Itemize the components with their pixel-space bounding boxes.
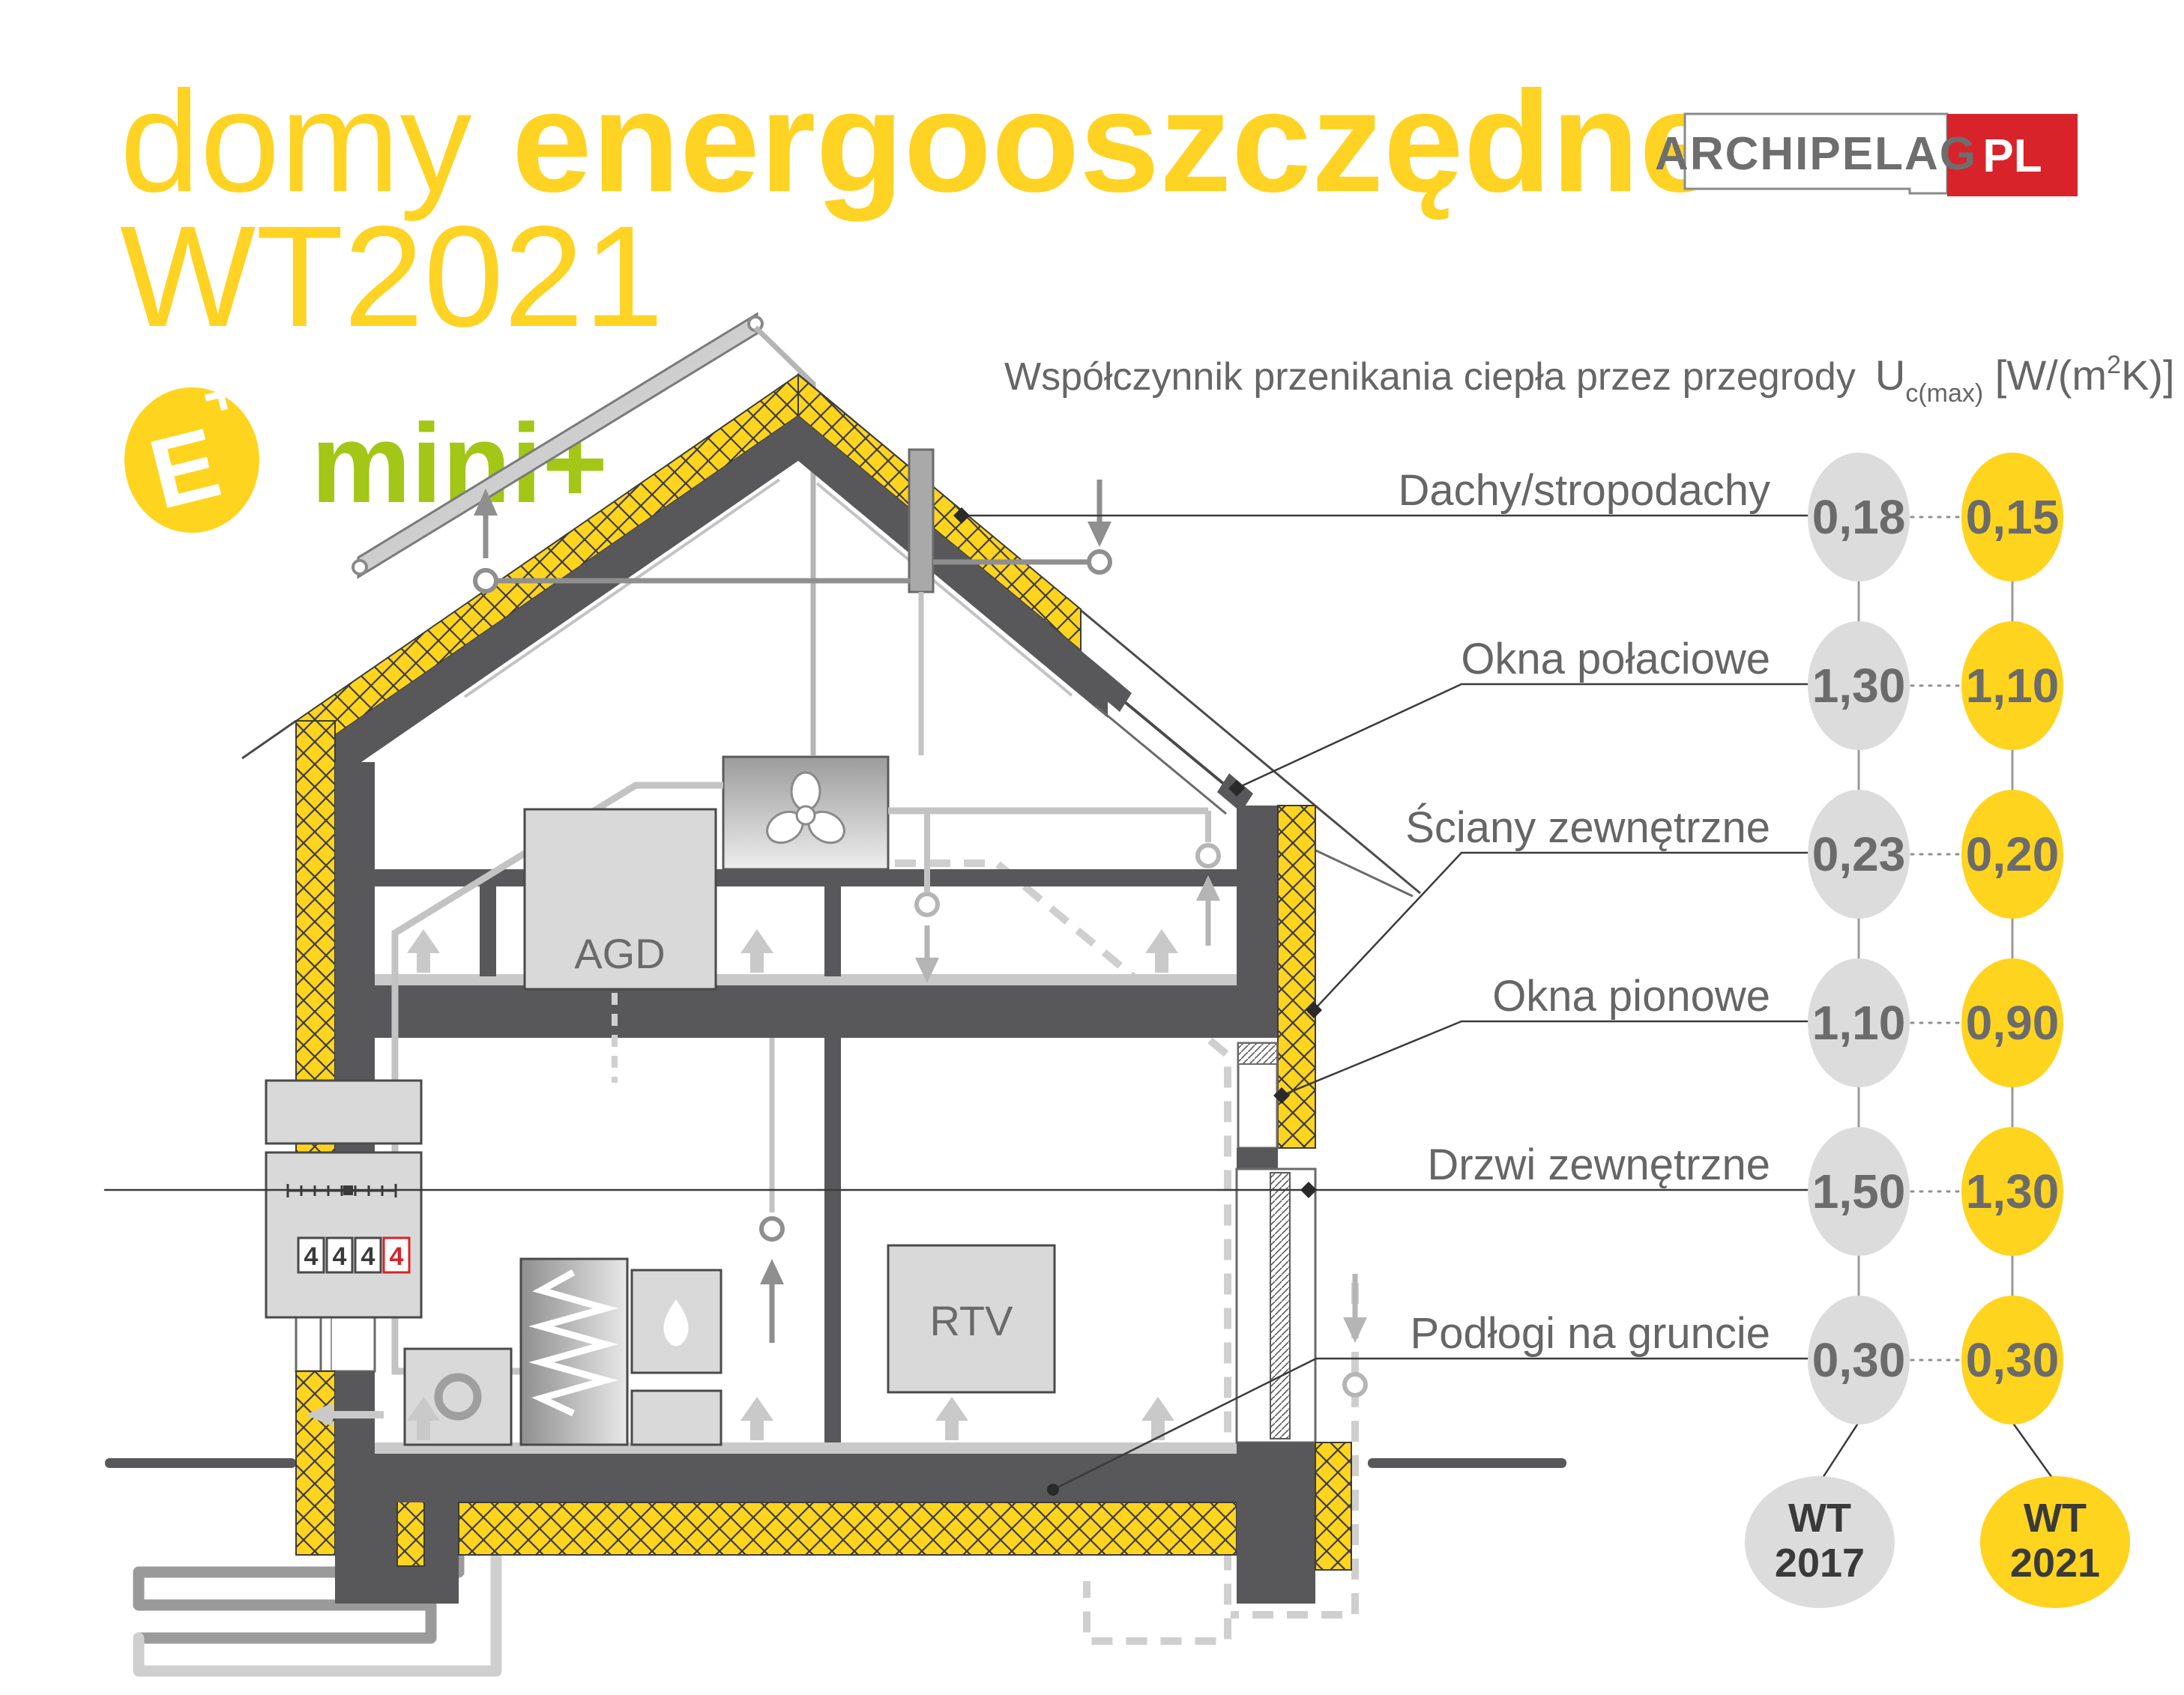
interior-wall-upper-left bbox=[480, 886, 496, 976]
roof-insulation-right bbox=[798, 375, 1081, 650]
value-wt2021: 0,15 bbox=[1966, 490, 2060, 544]
value-wt2017: 1,50 bbox=[1812, 1164, 1906, 1218]
row-label: Podłogi na gruncie bbox=[1411, 1309, 1770, 1358]
roof-eave-left bbox=[242, 721, 296, 758]
row-label: Dachy/stropodachy bbox=[1399, 466, 1770, 515]
rtv-label: RTV bbox=[930, 1297, 1014, 1344]
header-unit-close: K)] bbox=[2121, 351, 2175, 399]
wt2021-line1: WT bbox=[2024, 1496, 2087, 1541]
column-header-wt2021: WT 2021 bbox=[1980, 1476, 2130, 1608]
value-wt2017: 1,30 bbox=[1812, 659, 1906, 713]
title-bold: energooszczędne bbox=[512, 61, 1719, 222]
utility-box bbox=[266, 1081, 421, 1143]
table-header: Współczynnik przenikania ciepła przez pr… bbox=[1004, 351, 2175, 408]
meter-digit: 4 bbox=[304, 1242, 319, 1271]
column-tail-wt2021 bbox=[2012, 1422, 2052, 1478]
eplus-badge: E + bbox=[124, 355, 267, 533]
extract-vent-icon-right bbox=[1196, 845, 1220, 946]
header-unit-open: [W/(m bbox=[1983, 351, 2107, 399]
storage-box bbox=[632, 1391, 721, 1445]
interior-wall-upper-right bbox=[824, 886, 841, 976]
value-wt2021: 0,20 bbox=[1966, 827, 2060, 881]
agd-label: AGD bbox=[574, 930, 665, 977]
supply-vent-icon-mid bbox=[915, 894, 939, 983]
table-row: Okna połaciowe 1,30 1,10 bbox=[1228, 621, 2063, 797]
column-tail-wt2017 bbox=[1823, 1422, 1859, 1478]
value-wt2021: 0,30 bbox=[1966, 1333, 2060, 1387]
header-unit-sup: 2 bbox=[2107, 351, 2121, 379]
logo-tld: PL bbox=[1982, 130, 2042, 182]
value-wt2021: 1,30 bbox=[1966, 1164, 2060, 1218]
foundation-insulation-right bbox=[1315, 1442, 1351, 1570]
ground-line-left bbox=[105, 1458, 296, 1468]
wt2017-line1: WT bbox=[1788, 1496, 1851, 1541]
wt2017-line2: 2017 bbox=[1775, 1541, 1865, 1586]
window-right-blind bbox=[1238, 1043, 1277, 1064]
table-row: Dachy/stropodachy 0,18 0,15 bbox=[953, 453, 2063, 581]
value-wt2017: 0,30 bbox=[1812, 1333, 1906, 1387]
door-head bbox=[1237, 1148, 1278, 1169]
value-wt2021: 1,10 bbox=[1966, 659, 2060, 713]
floor-slab-ground bbox=[375, 1454, 1237, 1502]
archipelag-logo: ARCHIPELAG PL bbox=[1655, 114, 2078, 196]
value-wt2017: 0,23 bbox=[1812, 827, 1906, 881]
value-wt2021: 0,90 bbox=[1966, 996, 2060, 1050]
column-header-wt2017: WT 2017 bbox=[1745, 1476, 1895, 1608]
wall-structure-right-top bbox=[1237, 806, 1278, 985]
floor-insulation-ground bbox=[459, 1502, 1237, 1555]
plinth-insulation-left bbox=[296, 1371, 335, 1555]
page-title-line2: WT2021 bbox=[120, 196, 664, 357]
roof-structure-right bbox=[798, 416, 1108, 718]
door-vent-icon bbox=[1343, 1274, 1367, 1395]
attic-collar-beam bbox=[375, 869, 1237, 886]
header-u: U bbox=[1875, 351, 1905, 399]
floor-screed-upper bbox=[375, 974, 1237, 985]
exterior-door-leaf bbox=[1270, 1173, 1290, 1439]
meter-digit: 4 bbox=[333, 1242, 347, 1271]
meter-digit: 4 bbox=[361, 1242, 375, 1271]
floor-heat-arrows-upper bbox=[407, 929, 1178, 973]
roof-window-glass-inner bbox=[1096, 706, 1226, 814]
ground-line-right bbox=[1368, 1458, 1566, 1468]
infographic-canvas: domy energooszczędne WT2021 ARCHIPELAG P… bbox=[0, 0, 2184, 1695]
header-u-sub: c(max) bbox=[1905, 379, 1983, 408]
row-label: Okna połaciowe bbox=[1461, 635, 1770, 683]
foundation-right bbox=[1237, 1442, 1315, 1604]
meter-digit: 4 bbox=[390, 1242, 404, 1271]
table-row: Okna pionowe 1,10 0,90 bbox=[1273, 958, 2063, 1104]
header-label: Współczynnik przenikania ciepła przez pr… bbox=[1004, 355, 1856, 399]
vent-chimney bbox=[909, 450, 933, 592]
solar-panel-joint-bottom bbox=[353, 561, 366, 574]
row-label: Drzwi zewnętrzne bbox=[1427, 1140, 1770, 1189]
floor-slab-upper bbox=[375, 985, 1278, 1038]
wt2021-line2: 2021 bbox=[2010, 1541, 2100, 1586]
value-wt2017: 0,18 bbox=[1812, 490, 1906, 544]
energy-meter bbox=[266, 1152, 421, 1317]
row-label: Ściany zewnętrzne bbox=[1405, 803, 1770, 852]
infographic-page: domy energooszczędne WT2021 ARCHIPELAG P… bbox=[0, 0, 2184, 1695]
roof-window-glass-outer bbox=[1108, 688, 1238, 796]
value-wt2017: 1,10 bbox=[1812, 996, 1906, 1050]
interior-wall-ground bbox=[824, 1038, 841, 1442]
logo-name: ARCHIPELAG bbox=[1655, 128, 1977, 180]
row-label: Okna pionowe bbox=[1492, 972, 1770, 1021]
